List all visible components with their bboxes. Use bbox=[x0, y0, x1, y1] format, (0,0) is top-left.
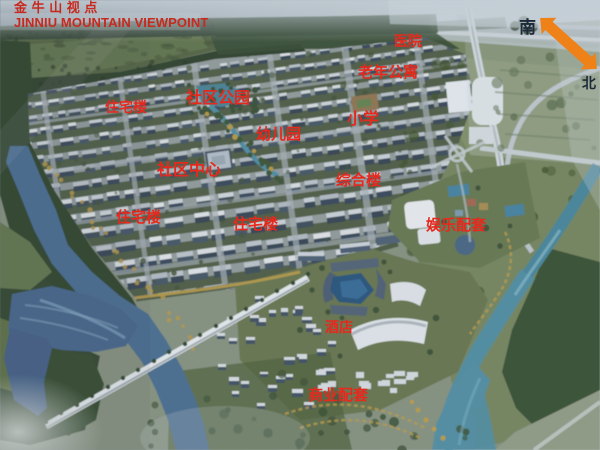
svg-text:住宅楼: 住宅楼 bbox=[105, 99, 147, 115]
svg-text:医院: 医院 bbox=[394, 33, 422, 49]
svg-text:金牛山视点: 金牛山视点 bbox=[13, 0, 102, 15]
svg-text:住宅楼: 住宅楼 bbox=[233, 215, 278, 233]
svg-text:老年公寓: 老年公寓 bbox=[357, 63, 418, 81]
svg-text:社区公园: 社区公园 bbox=[185, 88, 250, 107]
svg-text:住宅楼: 住宅楼 bbox=[116, 208, 161, 226]
svg-text:幼儿园: 幼儿园 bbox=[256, 125, 301, 143]
svg-text:社区中心: 社区中心 bbox=[156, 160, 221, 179]
svg-text:娱乐配套: 娱乐配套 bbox=[426, 216, 487, 234]
svg-text:小学: 小学 bbox=[347, 109, 379, 128]
svg-text:综合楼: 综合楼 bbox=[336, 171, 381, 189]
svg-text:JINNIU MOUNTAIN VIEWPOINT: JINNIU MOUNTAIN VIEWPOINT bbox=[14, 15, 208, 30]
svg-text:南: 南 bbox=[519, 17, 536, 37]
svg-text:商业配套: 商业配套 bbox=[308, 386, 369, 404]
svg-text:北: 北 bbox=[582, 75, 596, 91]
svg-text:酒店: 酒店 bbox=[325, 319, 353, 335]
